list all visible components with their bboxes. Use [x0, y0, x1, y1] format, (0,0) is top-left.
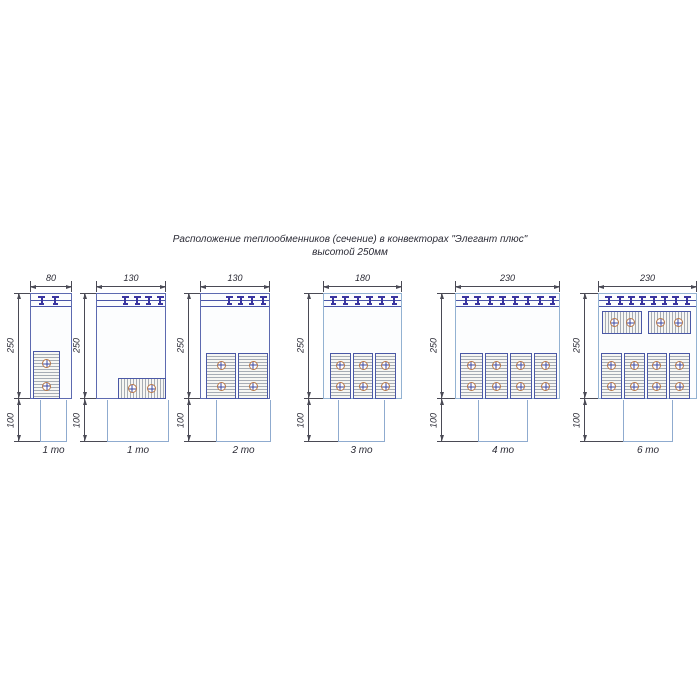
- heat-exchanger: [669, 353, 690, 399]
- mounting-clip-icon: [475, 303, 480, 305]
- grille-band-line: [599, 300, 696, 301]
- lower-dim-label: 100: [72, 400, 83, 440]
- grille-band-line: [456, 300, 559, 301]
- grille-band-line: [97, 300, 165, 301]
- pipe-icon: [359, 361, 368, 370]
- dim-arrow: [66, 285, 72, 289]
- mounting-clip-icon: [379, 303, 384, 305]
- pipe-icon: [675, 361, 684, 370]
- mounting-clip-icon: [39, 303, 44, 305]
- diagram-caption: 1 то: [108, 445, 168, 458]
- pipe-icon: [467, 382, 476, 391]
- dim-arrow: [83, 392, 87, 398]
- dim-arrow: [691, 285, 697, 289]
- mounting-clip-icon: [343, 303, 348, 305]
- dim-arrow: [160, 285, 166, 289]
- pipe-icon: [610, 318, 619, 327]
- lower-duct: [107, 400, 169, 442]
- pipe-icon: [492, 361, 501, 370]
- dimension-line: [323, 286, 402, 287]
- mounting-clip-icon: [158, 303, 163, 305]
- grille-band-line: [201, 306, 269, 307]
- mounting-clip-icon: [651, 303, 656, 305]
- heat-exchanger: [602, 311, 642, 334]
- dim-arrow: [583, 392, 587, 398]
- height-dim-label: 250: [572, 326, 583, 366]
- pipe-icon: [42, 382, 51, 391]
- heat-exchanger: [238, 353, 268, 399]
- lower-duct: [478, 400, 528, 442]
- title-line-2: высотой 250мм: [0, 246, 700, 259]
- mounting-clip-icon: [238, 303, 243, 305]
- width-dim-label: 230: [488, 273, 528, 284]
- mounting-clip-icon: [513, 303, 518, 305]
- mounting-clip-icon: [500, 303, 505, 305]
- heat-exchanger: [510, 353, 533, 399]
- technical-drawing-canvas: Расположение теплообменников (сечение) в…: [0, 0, 700, 700]
- pipe-icon: [249, 382, 258, 391]
- pipe-icon: [626, 318, 635, 327]
- lower-duct: [216, 400, 271, 442]
- drawing-title: Расположение теплообменников (сечение) в…: [0, 233, 700, 259]
- pipe-icon: [359, 382, 368, 391]
- dim-arrow: [17, 392, 21, 398]
- mounting-clip-icon: [331, 303, 336, 305]
- dim-arrow: [83, 435, 87, 441]
- lower-dim-label: 100: [6, 400, 17, 440]
- mounting-clip-icon: [488, 303, 493, 305]
- dim-arrow: [583, 435, 587, 441]
- pipe-icon: [674, 318, 683, 327]
- dim-arrow: [30, 285, 36, 289]
- dim-arrow: [598, 285, 604, 289]
- dim-arrow: [96, 285, 102, 289]
- heat-exchanger: [648, 311, 691, 334]
- heat-exchanger: [33, 351, 60, 399]
- lower-duct: [40, 400, 67, 442]
- lower-duct: [623, 400, 673, 442]
- dim-arrow: [187, 435, 191, 441]
- grille-band-line: [31, 300, 71, 301]
- pipe-icon: [336, 361, 345, 370]
- dim-arrow: [187, 293, 191, 299]
- heat-exchanger: [485, 353, 508, 399]
- grille-band-line: [599, 306, 696, 307]
- dimension-line: [96, 286, 166, 287]
- diagram-caption: 6 то: [618, 445, 678, 458]
- mounting-clip-icon: [392, 303, 397, 305]
- dimension-line: [188, 293, 189, 442]
- lower-dim-label: 100: [296, 400, 307, 440]
- heat-exchanger: [534, 353, 557, 399]
- grille-band-line: [456, 306, 559, 307]
- mounting-clip-icon: [550, 303, 555, 305]
- dim-arrow: [455, 285, 461, 289]
- mounting-clip-icon: [673, 303, 678, 305]
- pipe-icon: [492, 382, 501, 391]
- heat-exchanger: [601, 353, 622, 399]
- heat-exchanger: [330, 353, 351, 399]
- mounting-clip-icon: [685, 303, 690, 305]
- grille-band-line: [324, 306, 401, 307]
- pipe-icon: [607, 382, 616, 391]
- dimension-line: [584, 293, 585, 442]
- pipe-icon: [217, 361, 226, 370]
- grille-band-line: [201, 300, 269, 301]
- pipe-icon: [630, 361, 639, 370]
- heat-exchanger: [118, 378, 166, 399]
- mounting-clip-icon: [123, 303, 128, 305]
- dim-arrow: [264, 285, 270, 289]
- dim-arrow: [187, 392, 191, 398]
- dim-arrow: [583, 399, 587, 405]
- width-dim-label: 180: [343, 273, 383, 284]
- dim-arrow: [396, 285, 402, 289]
- dim-arrow: [307, 293, 311, 299]
- heat-exchanger: [624, 353, 645, 399]
- mounting-clip-icon: [355, 303, 360, 305]
- width-dim-label: 230: [628, 273, 668, 284]
- mounting-clip-icon: [135, 303, 140, 305]
- dim-arrow: [17, 293, 21, 299]
- dimension-line: [441, 293, 442, 442]
- pipe-icon: [336, 382, 345, 391]
- dim-arrow: [583, 293, 587, 299]
- dim-arrow: [554, 285, 560, 289]
- heat-exchanger: [375, 353, 396, 399]
- dim-arrow: [17, 435, 21, 441]
- title-line-1: Расположение теплообменников (сечение) в…: [0, 233, 700, 246]
- diagram-caption: 4 то: [473, 445, 533, 458]
- heat-exchanger: [206, 353, 236, 399]
- heat-exchanger: [353, 353, 374, 399]
- mounting-clip-icon: [53, 303, 58, 305]
- height-dim-label: 250: [429, 326, 440, 366]
- dim-arrow: [200, 285, 206, 289]
- pipe-icon: [467, 361, 476, 370]
- mounting-clip-icon: [538, 303, 543, 305]
- width-dim-label: 130: [111, 273, 151, 284]
- height-dim-label: 250: [72, 326, 83, 366]
- dim-arrow: [307, 435, 311, 441]
- pipe-icon: [249, 361, 258, 370]
- dimension-line: [84, 293, 85, 442]
- height-dim-label: 250: [176, 326, 187, 366]
- mounting-clip-icon: [525, 303, 530, 305]
- diagram-caption: 3 то: [332, 445, 392, 458]
- mounting-clip-icon: [367, 303, 372, 305]
- mounting-clip-icon: [662, 303, 667, 305]
- diagram-caption: 2 то: [214, 445, 274, 458]
- pipe-icon: [541, 361, 550, 370]
- dim-arrow: [440, 435, 444, 441]
- pipe-icon: [381, 361, 390, 370]
- mounting-clip-icon: [640, 303, 645, 305]
- pipe-icon: [607, 361, 616, 370]
- dim-arrow: [83, 293, 87, 299]
- extension-line: [437, 441, 478, 442]
- dimension-line: [200, 286, 270, 287]
- dim-arrow: [440, 399, 444, 405]
- dimension-line: [308, 293, 309, 442]
- dim-arrow: [83, 399, 87, 405]
- dim-arrow: [323, 285, 329, 289]
- dimension-line: [598, 286, 697, 287]
- dim-arrow: [440, 392, 444, 398]
- extension-line: [304, 441, 338, 442]
- dim-arrow: [307, 399, 311, 405]
- dimension-line: [455, 286, 560, 287]
- dim-arrow: [187, 399, 191, 405]
- diagram-caption: 1 то: [24, 445, 84, 458]
- dim-arrow: [17, 399, 21, 405]
- mounting-clip-icon: [249, 303, 254, 305]
- grille-band-line: [324, 300, 401, 301]
- lower-dim-label: 100: [176, 400, 187, 440]
- heat-exchanger: [647, 353, 668, 399]
- heat-exchanger: [460, 353, 483, 399]
- dim-arrow: [307, 392, 311, 398]
- mounting-clip-icon: [606, 303, 611, 305]
- width-dim-label: 80: [31, 273, 71, 284]
- extension-line: [580, 441, 623, 442]
- height-dim-label: 250: [296, 326, 307, 366]
- dimension-line: [18, 293, 19, 442]
- mounting-clip-icon: [261, 303, 266, 305]
- grille-band-line: [31, 306, 71, 307]
- lower-dim-label: 100: [572, 400, 583, 440]
- mounting-clip-icon: [629, 303, 634, 305]
- mounting-clip-icon: [463, 303, 468, 305]
- mounting-clip-icon: [146, 303, 151, 305]
- lower-duct: [338, 400, 385, 442]
- mounting-clip-icon: [227, 303, 232, 305]
- grille-band-line: [97, 306, 165, 307]
- width-dim-label: 130: [215, 273, 255, 284]
- pipe-icon: [630, 382, 639, 391]
- height-dim-label: 250: [6, 326, 17, 366]
- pipe-icon: [128, 384, 137, 393]
- lower-dim-label: 100: [429, 400, 440, 440]
- pipe-icon: [217, 382, 226, 391]
- mounting-clip-icon: [618, 303, 623, 305]
- dim-arrow: [440, 293, 444, 299]
